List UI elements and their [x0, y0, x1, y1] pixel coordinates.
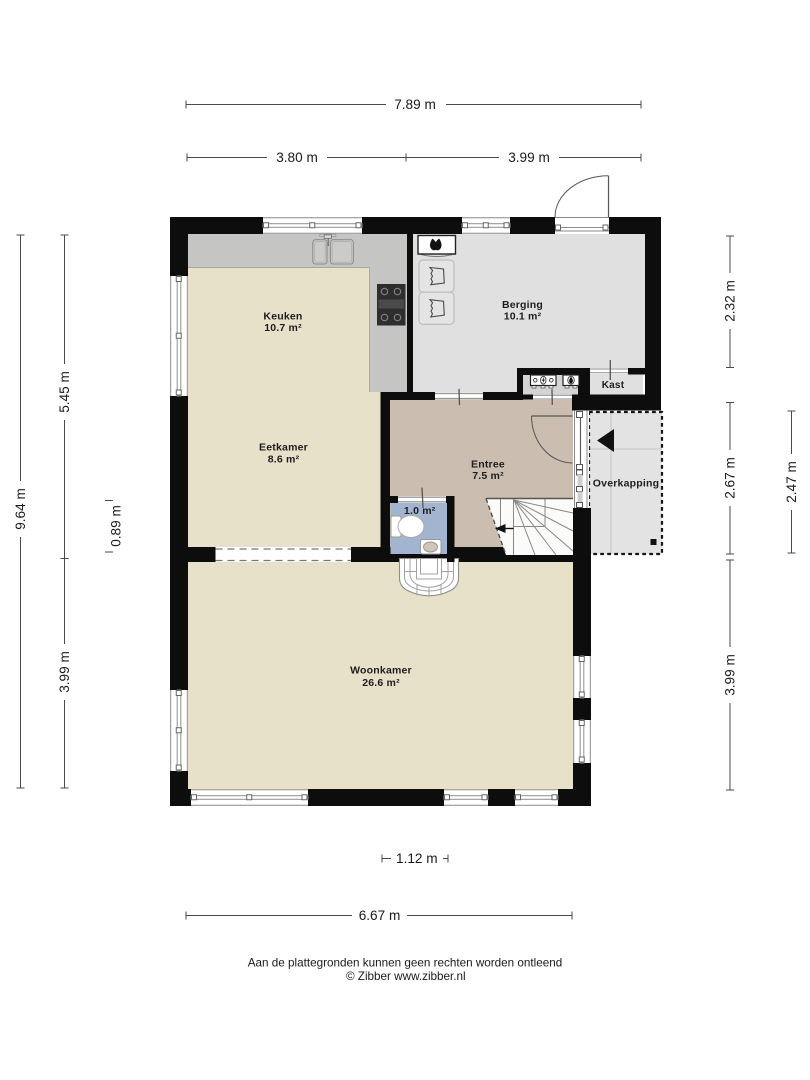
- svg-text:3.99 m: 3.99 m: [508, 150, 550, 165]
- svg-text:Berging: Berging: [502, 299, 543, 311]
- svg-text:Overkapping: Overkapping: [593, 478, 659, 490]
- svg-text:Aan de plattegronden kunnen ge: Aan de plattegronden kunnen geen rechten…: [248, 957, 563, 970]
- svg-text:8.6 m²: 8.6 m²: [268, 454, 300, 466]
- svg-text:0.89 m: 0.89 m: [109, 505, 124, 547]
- svg-text:3.99 m: 3.99 m: [57, 651, 72, 693]
- svg-text:5.45 m: 5.45 m: [57, 371, 72, 413]
- svg-text:Kast: Kast: [602, 380, 625, 391]
- svg-text:© Zibber www.zibber.nl: © Zibber www.zibber.nl: [346, 970, 466, 983]
- svg-text:3.99 m: 3.99 m: [723, 654, 738, 696]
- svg-text:9.64 m: 9.64 m: [13, 488, 28, 530]
- svg-text:1.12 m: 1.12 m: [396, 851, 438, 866]
- svg-text:3.80 m: 3.80 m: [276, 150, 318, 165]
- svg-text:Eetkamer: Eetkamer: [259, 442, 308, 454]
- svg-text:1.0 m²: 1.0 m²: [404, 505, 436, 517]
- svg-text:7.89 m: 7.89 m: [394, 97, 436, 112]
- svg-text:10.1 m²: 10.1 m²: [504, 311, 542, 323]
- svg-text:2.47 m: 2.47 m: [784, 461, 799, 503]
- svg-text:26.6 m²: 26.6 m²: [362, 677, 400, 689]
- svg-text:10.7 m²: 10.7 m²: [264, 322, 302, 334]
- svg-text:2.67 m: 2.67 m: [723, 457, 738, 499]
- svg-text:2.32 m: 2.32 m: [723, 280, 738, 322]
- svg-text:Entree: Entree: [471, 458, 505, 470]
- svg-text:6.67 m: 6.67 m: [359, 908, 401, 923]
- svg-text:Woonkamer: Woonkamer: [350, 665, 412, 677]
- svg-text:7.5 m²: 7.5 m²: [472, 470, 504, 482]
- svg-text:Keuken: Keuken: [263, 311, 302, 323]
